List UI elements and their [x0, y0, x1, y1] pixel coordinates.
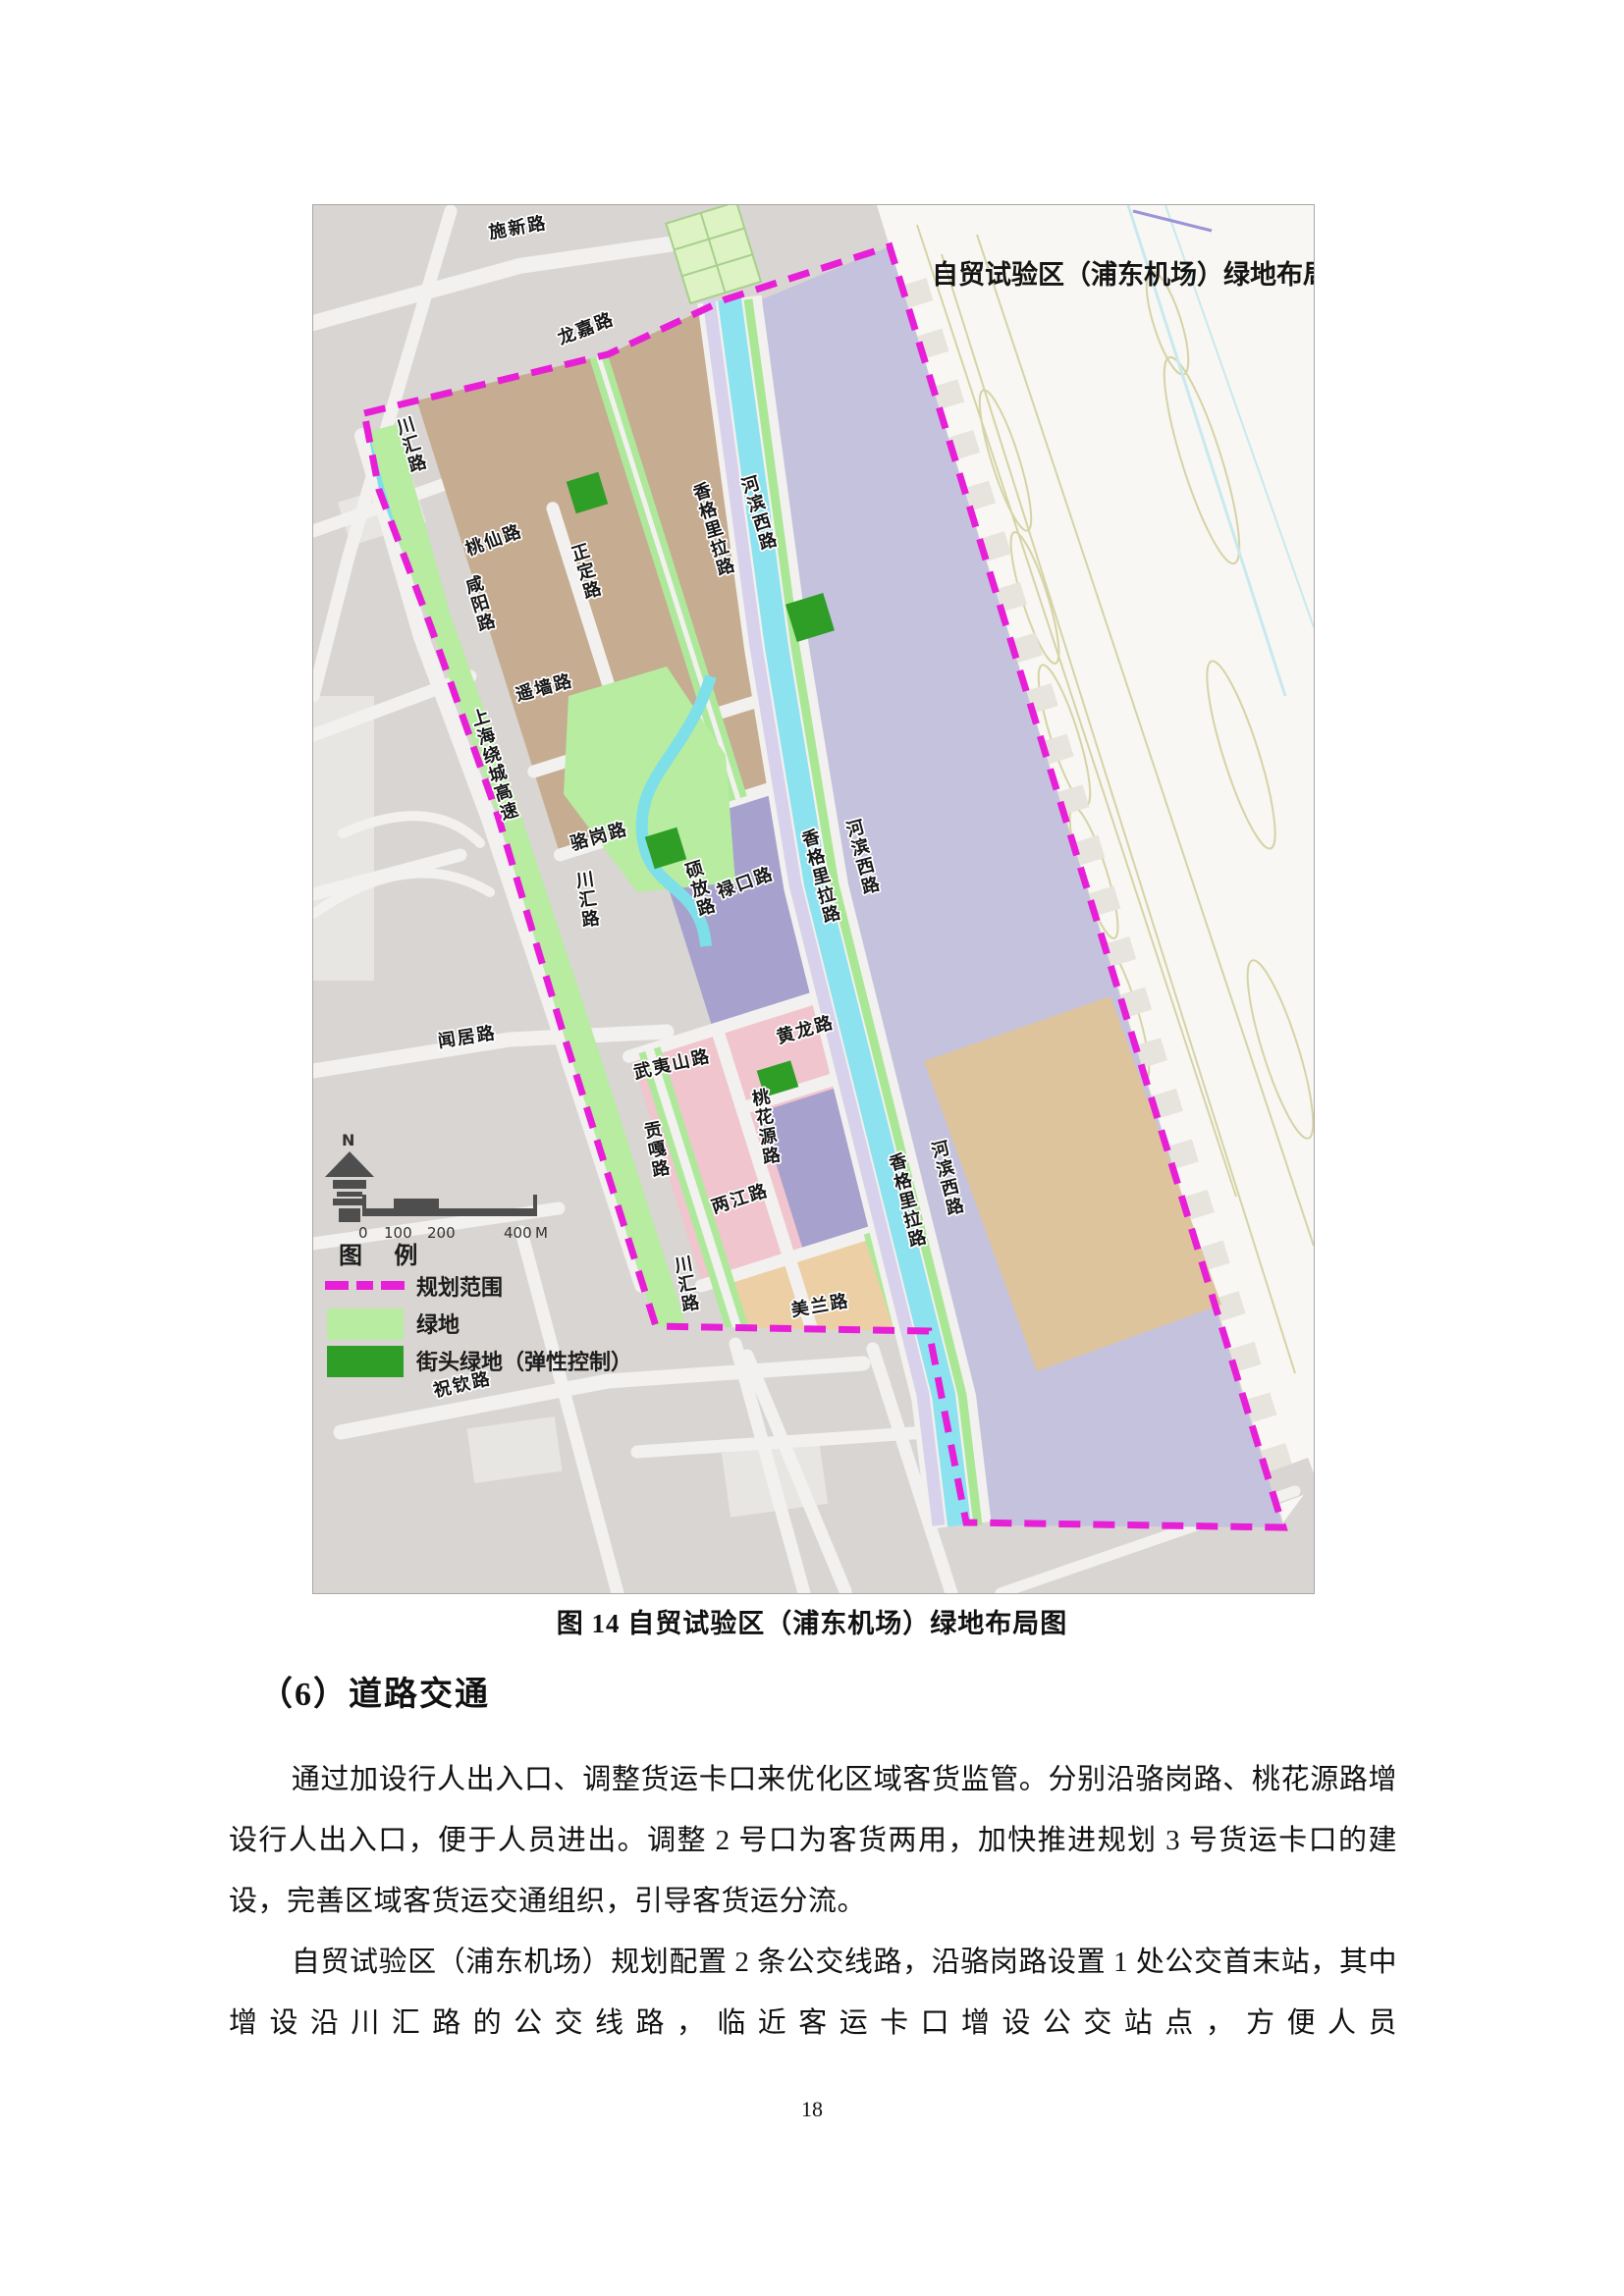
body-text: 通过加设行人出入口、调整货运卡口来优化区域客货监管。分别沿骆岗路、桃花源路增设行…	[229, 1749, 1397, 2054]
scale-200: 200	[427, 1224, 456, 1242]
land-use-map: N 0 100 200 400 M 图 例	[312, 204, 1315, 1594]
figure-caption: 图 14 自贸试验区（浦东机场）绿地布局图	[0, 1602, 1624, 1640]
page-number: 18	[0, 2097, 1624, 2122]
section-heading: （6）道路交通	[259, 1667, 490, 1715]
paragraph-2: 自贸试验区（浦东机场）规划配置 2 条公交线路，沿骆岗路设置 1 处公交首末站，…	[229, 1932, 1397, 2054]
legend-swatch-green	[327, 1308, 404, 1340]
legend-swatch-boundary	[325, 1281, 405, 1290]
paragraph-1: 通过加设行人出入口、调整货运卡口来优化区域客货监管。分别沿骆岗路、桃花源路增设行…	[229, 1749, 1397, 1932]
scale-0: 0	[358, 1224, 368, 1242]
legend-label-green: 绿地	[416, 1312, 460, 1338]
north-label: N	[342, 1131, 354, 1149]
scale-unit: M	[535, 1224, 548, 1242]
document-page: N 0 100 200 400 M 图 例	[0, 0, 1624, 2296]
scale-100: 100	[384, 1224, 412, 1242]
scale-400: 400	[504, 1224, 532, 1242]
legend-swatch-street-green	[327, 1346, 404, 1377]
legend-title: 图 例	[339, 1242, 429, 1269]
legend-label-boundary: 规划范围	[416, 1276, 503, 1301]
legend-label-street-green: 街头绿地（弹性控制）	[415, 1350, 632, 1375]
map-title: 自贸试验区（浦东机场）绿地布局图	[932, 259, 1314, 291]
